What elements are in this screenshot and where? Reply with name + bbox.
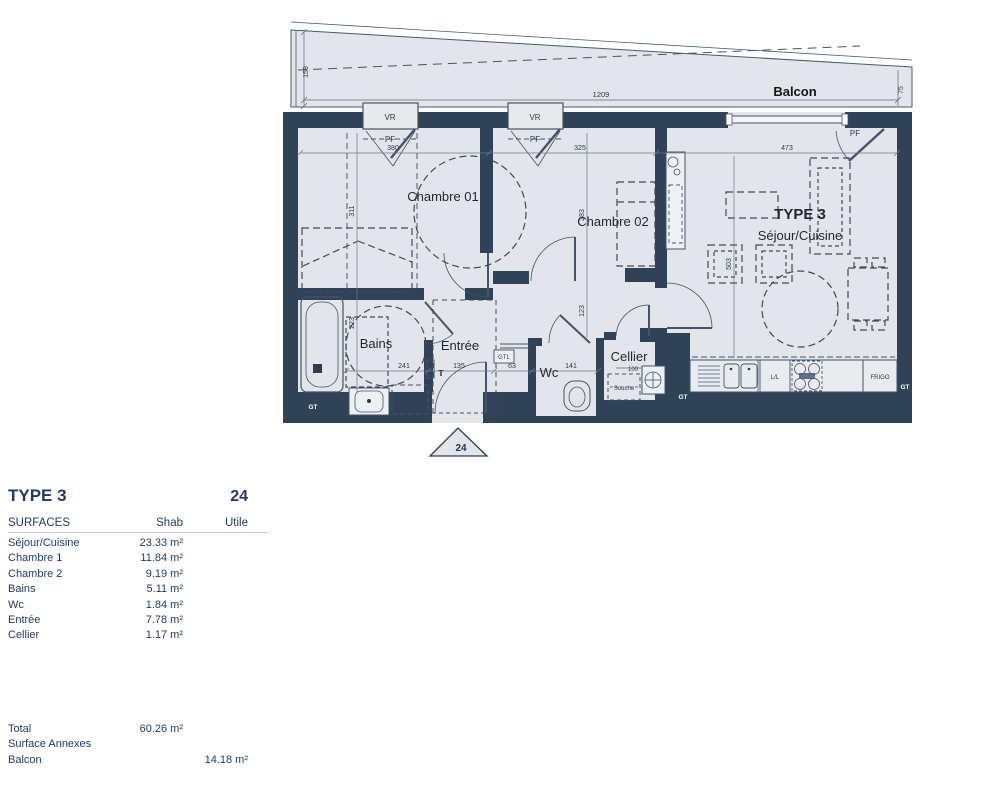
room-label-chambre2: Chambre 02 [577,214,649,229]
room-label-type: TYPE 3 [774,206,826,223]
type-title: TYPE 3 [8,486,192,506]
row-shab: 7.78 m² [136,613,192,628]
dim-bains-width: 241 [398,363,410,370]
wall-wc-left [528,346,536,420]
annex-row: Balcon 14.18 m² [8,753,268,768]
dishwasher-label: L/L [771,375,780,381]
total-shab: 60.26 m² [136,722,192,737]
surface-totals: Total 60.26 m² Surface Annexes Balcon 14… [8,722,268,768]
dim-cellier: 100 [628,367,639,373]
window-vr2-label: VR [529,113,540,122]
entrance-recess [432,392,483,423]
dim-balcony-right: 75 [898,86,905,94]
room-label-chambre1: Chambre 01 [407,189,479,204]
room-label-entree: Entrée [441,338,479,353]
wall-ch2-corridor-left [493,271,529,284]
col-utile: Utile [192,517,256,529]
wall-wc-right [596,338,604,420]
col-surfaces: SURFACES [8,517,136,529]
dim-ch1-depth: 311 [349,205,356,216]
tall-unit [666,152,685,249]
surface-table: TYPE 3 24 SURFACES Shab Utile Séjour/Cui… [8,486,268,768]
row-shab: 1.84 m² [136,598,192,613]
row-label: Chambre 1 [8,551,136,566]
gt-label-right: GT [900,384,909,391]
lot-number-title: 24 [192,488,256,506]
gt-label-middle: GT [678,394,687,401]
dim-entree-width: 135 [453,363,465,370]
room-label-sejour: Séjour/Cuisine [758,228,843,243]
table-row: Entrée 7.78 m² [8,613,268,628]
dim-bains-depth: 223 [349,317,356,329]
fridge-label: FRIGO [871,375,890,381]
col-shab: Shab [136,517,192,529]
row-label: Entrée [8,613,136,628]
annex-utile: 14.18 m² [192,753,256,768]
dim-sejour-width: 473 [781,145,793,152]
room-label-wc: Wc [540,365,559,380]
row-label: Bains [8,582,136,597]
row-label: Cellier [8,628,136,643]
water-heater [642,366,665,394]
room-label-cellier: Cellier [611,349,649,364]
row-shab: 9.19 m² [136,567,192,582]
balcony: 159 1209 75 Balcon [291,22,912,109]
table-row: Chambre 1 11.84 m² [8,551,268,566]
dim-balcony-left: 159 [303,66,310,78]
dim-hall-width: 63 [508,363,516,370]
washbasin [349,388,389,415]
dim-balcony-length: 1209 [593,90,610,99]
wall-ch1-corridor [480,128,493,253]
annex-title: Surface Annexes [8,737,136,752]
wall-right [897,112,912,423]
lot-marker: 24 [430,428,487,456]
total-label: Total [8,722,136,737]
surface-table-header: SURFACES Shab Utile [8,517,268,533]
table-row: Chambre 2 9.19 m² [8,567,268,582]
gtl-label: GTL [498,355,510,361]
table-row: Cellier 1.17 m² [8,628,268,643]
floor-plan: 159 1209 75 Balcon [0,0,1000,470]
annex-label: Balcon [8,753,136,768]
row-shab: 1.17 m² [136,628,192,643]
row-shab: 5.11 m² [136,582,192,597]
annex-title-row: Surface Annexes [8,737,268,752]
window-pf2-label: PF [530,135,540,144]
dim-ch2-width: 325 [574,145,586,152]
dim-corridor: 123 [579,305,586,317]
gt-label-left: GT [308,404,317,411]
room-label-bains: Bains [360,336,393,351]
window-pf1-label: PF [385,135,395,144]
dim-sejour-depth: 503 [726,258,733,270]
lot-number: 24 [455,443,467,454]
table-row: Wc 1.84 m² [8,598,268,613]
row-label: Chambre 2 [8,567,136,582]
floor-plan-svg: 159 1209 75 Balcon [0,0,1000,470]
washing-machine-label: LL [407,398,414,404]
kitchen-counter: L/L FRIGO [690,357,897,392]
radiator-label: T [438,368,444,378]
balcony-label: Balcon [773,84,816,99]
table-row: Séjour/Cuisine 23.33 m² [8,536,268,551]
dim-wc-width: 141 [565,363,577,370]
total-row: Total 60.26 m² [8,722,268,737]
table-row: Bains 5.11 m² [8,582,268,597]
dim-ch1-width: 380 [387,145,399,152]
row-shab: 23.33 m² [136,536,192,551]
row-label: Wc [8,598,136,613]
row-shab: 11.84 m² [136,551,192,566]
wall-left [283,112,298,423]
surface-rows: Séjour/Cuisine 23.33 m² Chambre 1 11.84 … [8,536,268,644]
window-pf3-label: PF [850,129,860,138]
window-vr1-label: VR [384,113,395,122]
surface-table-title-row: TYPE 3 24 [8,486,268,506]
row-label: Séjour/Cuisine [8,536,136,551]
